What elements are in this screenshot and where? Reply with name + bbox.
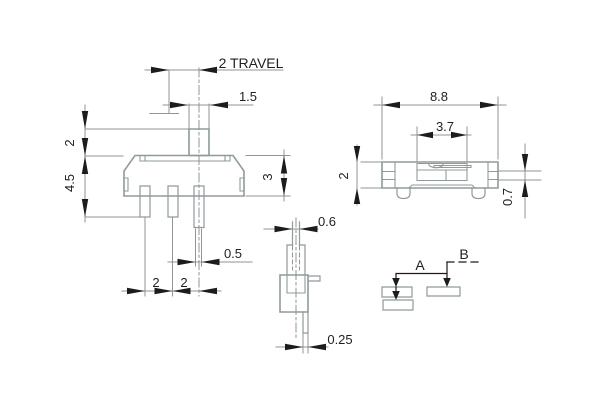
body-depth-arrow-bottom [354,188,360,204]
position-a-leader [396,274,447,279]
travel-arrow-right [199,67,217,73]
overall-height-arrow-top [82,156,88,174]
pitch-right-label: 2 [180,275,187,290]
position-contact-right [427,287,460,296]
slot-width-arrow-left [417,132,433,138]
terminal-thickness-arrow-top [522,154,528,171]
left-extension-lines [85,129,188,217]
actuator-thickness-label: 0.6 [318,214,336,229]
top-right-post [472,188,485,199]
actuator-thickness-arrow-right [300,226,318,232]
top-slider-slot [417,164,467,171]
terminal-thickness-arrow-bottom [522,180,528,197]
body-depth-arrow-top [354,146,360,162]
actuator-thickness-arrow-left [275,226,293,232]
body-width-arrow-right [480,102,498,108]
knob-width-label: 1.5 [239,89,257,104]
top-left-terminal-block [382,162,395,188]
pin-thickness-arrow-right [308,344,326,350]
body-width-arrow-left [382,102,400,108]
overall-height-label: 4.5 [62,174,77,192]
terminal-thickness-label: 0.7 [500,188,515,206]
side-body-tab [308,276,320,281]
top-left-post [397,188,410,199]
label-layer: 2 TRAVEL 1.5 2 4.5 3 0.5 2 2 8.8 3.7 2 0… [62,55,515,347]
knob-width-arrow-left [170,102,188,108]
side-view [280,222,320,333]
pin-thickness-arrow-left [285,344,303,350]
side-pin [303,312,308,333]
pitch-arrow-1 [127,288,145,294]
body-height-label: 3 [260,173,275,180]
pin-width-arrow-left [178,259,196,265]
top-actuator-bar [434,166,471,168]
position-contact-left-lower [383,300,413,310]
body-width-label: 8.8 [430,89,448,104]
arrowhead-layer [82,67,528,350]
dimension-layer [85,68,541,353]
pitch-left-label: 2 [152,275,159,290]
pin-thickness-label: 0.25 [327,332,352,347]
body-height-arrow-bottom [281,178,287,196]
slot-width-label: 3.7 [436,119,454,134]
travel-arrow-left [151,67,169,73]
top-view [382,162,498,199]
body-height-arrow-top [281,156,287,174]
body-depth-extensions [361,162,381,188]
drawing-canvas: 2 TRAVEL 1.5 2 4.5 3 0.5 2 2 8.8 3.7 2 0… [0,0,600,400]
knob-height-arrow-bottom [82,138,88,156]
pin-width-arrow-right [202,259,220,265]
travel-label: 2 TRAVEL [219,55,284,71]
position-a-arrow [392,278,400,287]
position-a-arrow-2 [392,291,400,300]
pin-thickness-extensions [303,334,308,353]
front-body-top-recess [140,156,230,162]
knob-height-arrow-top [82,111,88,129]
front-pin-1 [140,186,150,217]
front-body-outline [124,156,244,197]
position-diagram [382,287,460,310]
pin-width-label: 0.5 [224,246,242,261]
knob-height-label: 2 [62,139,77,146]
knob-width-arrow-right [210,102,228,108]
terminal-thickness-extensions [499,171,541,180]
position-a-label: A [415,257,425,273]
front-view [124,129,244,228]
overall-height-arrow-bottom [82,199,88,217]
front-pin-2 [168,186,178,217]
position-b-arrow [443,278,451,287]
body-depth-label: 2 [336,172,351,179]
top-right-terminal-block [488,162,498,188]
pitch-arrow-4 [199,288,217,294]
slide-switch-dimensional-drawing: 2 TRAVEL 1.5 2 4.5 3 0.5 2 2 8.8 3.7 2 0… [0,0,600,400]
top-contact-window [417,170,467,181]
position-b-label: B [459,246,468,262]
